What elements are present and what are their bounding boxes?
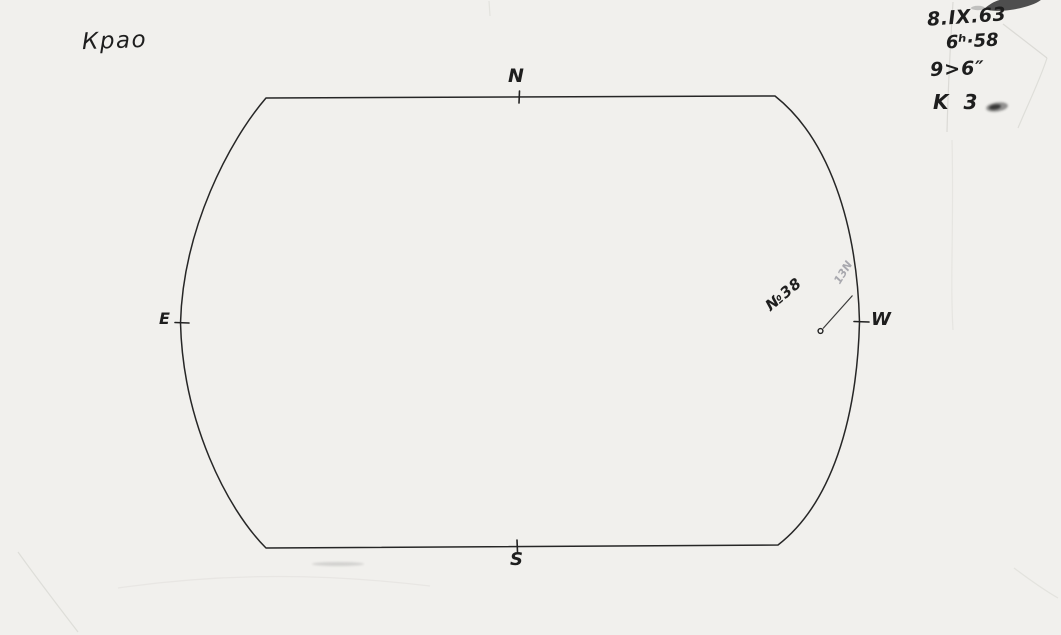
pencil-smear — [312, 562, 364, 566]
compass-label-east: E — [159, 311, 170, 327]
west-tick — [854, 322, 869, 323]
compass-label-north: N — [508, 67, 524, 86]
sunspot-mark — [818, 329, 823, 334]
east-tick — [175, 323, 189, 324]
observatory-label: Крао — [82, 29, 148, 54]
note-seeing: 9>6″ — [930, 59, 985, 80]
scanned-paper: Крао 8.IX.63 6ʰ·58 9>6″ K 3 N S E W №38 … — [0, 0, 1061, 635]
north-tick — [519, 91, 520, 103]
note-time: 6ʰ·58 — [946, 32, 999, 53]
compass-label-west: W — [871, 311, 891, 329]
note-quality: K 3 — [933, 92, 981, 112]
compass-label-south: S — [510, 551, 523, 569]
